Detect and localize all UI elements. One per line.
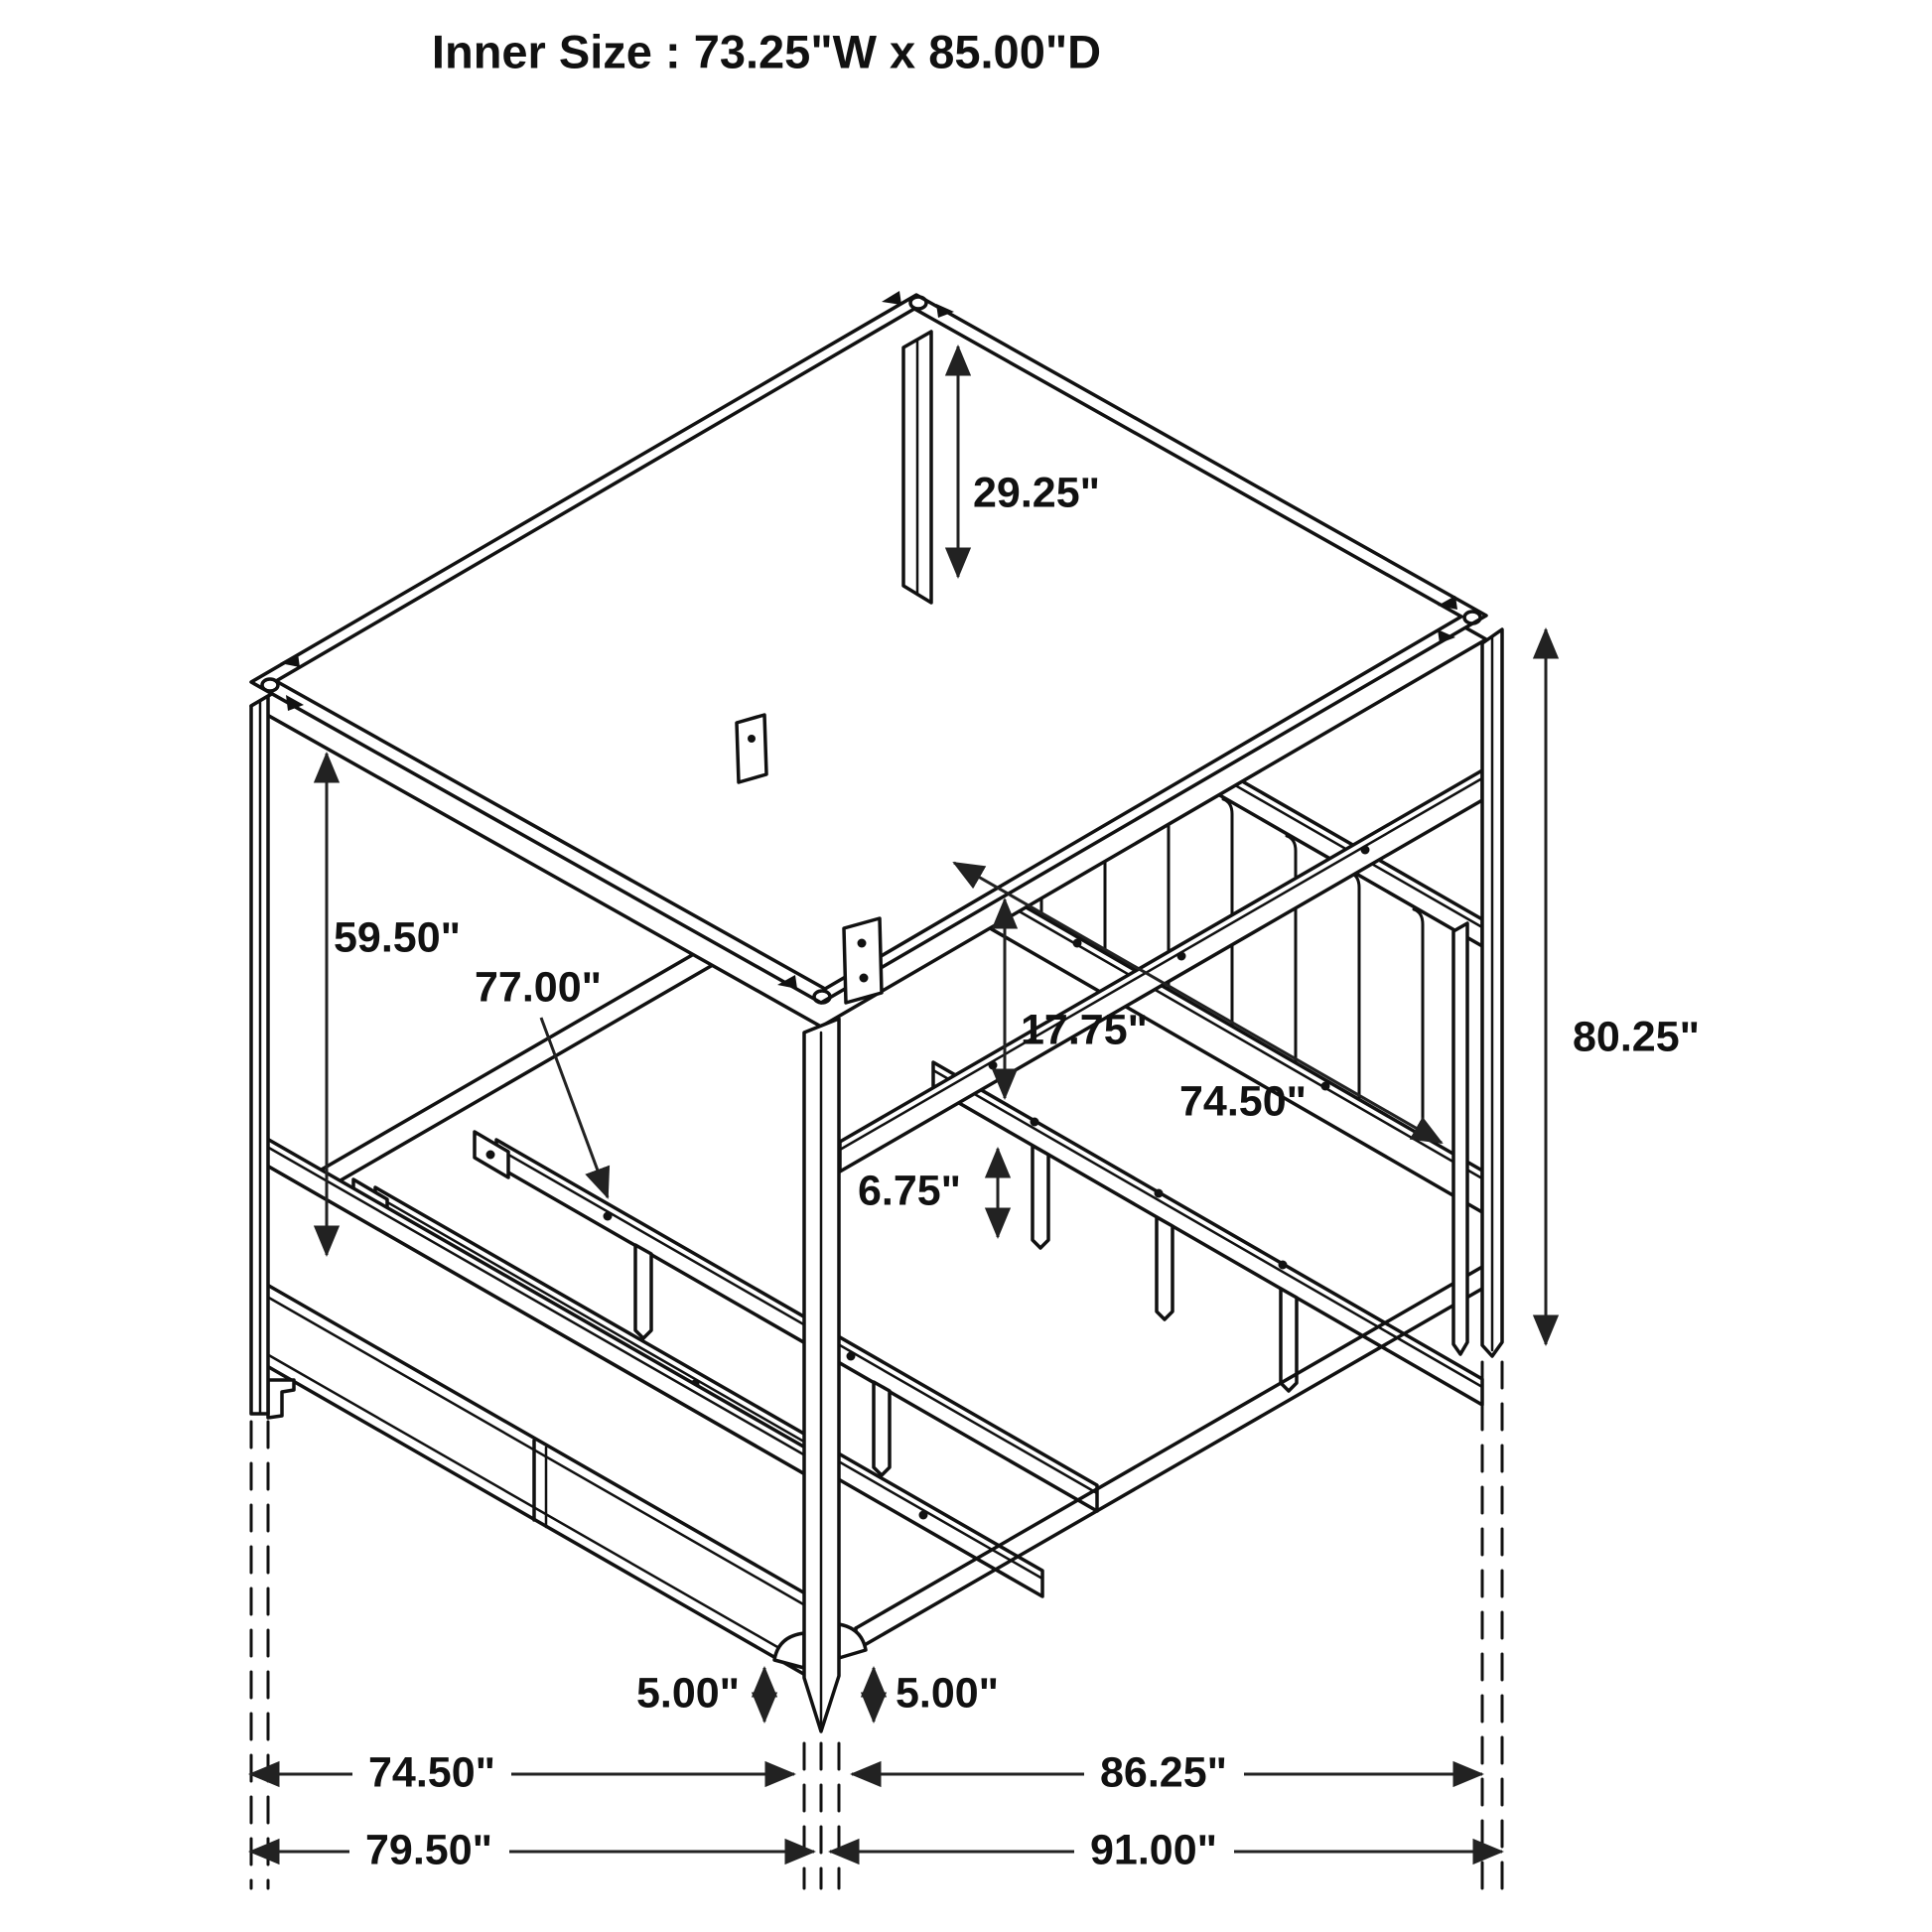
back-post — [903, 332, 931, 603]
left-post — [251, 696, 268, 1414]
slat-leg — [1033, 1146, 1048, 1248]
dimension-label-foot-height-left: 5.00" — [636, 1670, 740, 1719]
right-post — [1482, 629, 1502, 1356]
slat-leg — [635, 1245, 651, 1338]
rail-bracket-plate — [737, 715, 766, 782]
foot-bracket — [839, 1624, 866, 1658]
rail-bracket-plate — [844, 918, 882, 1003]
dimension-label-slat-leg-height: 6.75" — [858, 1168, 961, 1216]
dimension-label-slat-length: 77.00" — [475, 964, 602, 1013]
foot-bracket — [268, 1380, 294, 1418]
headboard-leg — [1453, 923, 1467, 1354]
dimension-label-headboard-to-canopy: 29.25" — [973, 470, 1100, 518]
dimension-label-rail-height: 17.75" — [1021, 1007, 1148, 1055]
slat-leg — [1157, 1217, 1173, 1319]
dimension-label-foot-height-right: 5.00" — [896, 1670, 999, 1719]
bed-line-drawing — [0, 0, 1932, 1932]
dimension-label-headboard-side-length: 86.25" — [1100, 1749, 1227, 1798]
dimension-label-footboard-side-width: 74.50" — [368, 1749, 495, 1798]
bed-dimension-diagram: Inner Size : 73.25"W x 85.00"D 29.25" 59… — [0, 0, 1932, 1932]
slat-leg — [874, 1382, 890, 1475]
dimension-label-under-canopy-clearance: 59.50" — [334, 914, 461, 963]
footboard — [260, 1135, 866, 1679]
dimension-label-inner-side-length: 74.50" — [1179, 1078, 1307, 1127]
dimension-label-overall-post-height: 80.25" — [1573, 1014, 1700, 1062]
dimension-label-overall-width: 79.50" — [365, 1827, 492, 1875]
dimension-label-overall-length: 91.00" — [1090, 1827, 1217, 1875]
diagram-title: Inner Size : 73.25"W x 85.00"D — [432, 25, 1101, 79]
